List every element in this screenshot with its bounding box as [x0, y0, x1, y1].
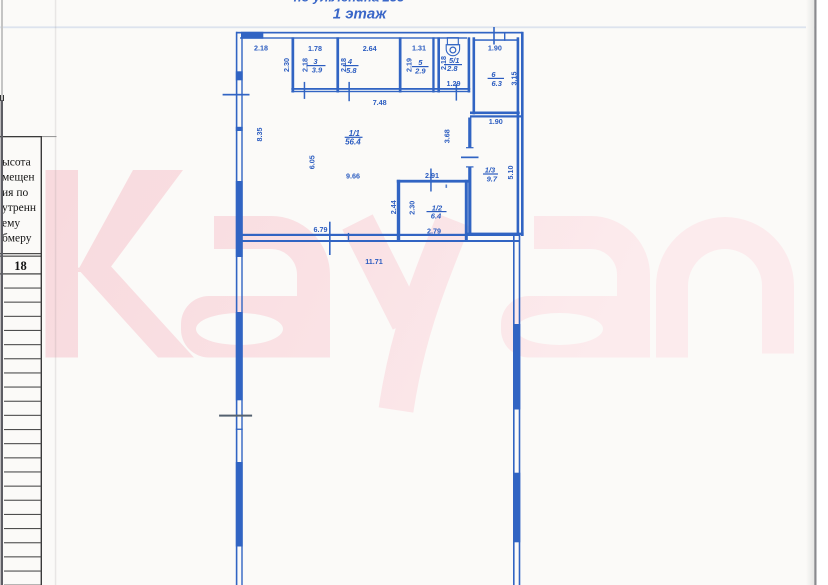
svg-text:5.10: 5.10: [506, 166, 515, 180]
svg-text:6.4: 6.4: [431, 211, 442, 220]
svg-text:5.8: 5.8: [346, 66, 357, 75]
svg-text:2.19: 2.19: [405, 58, 414, 72]
svg-text:1.90: 1.90: [489, 117, 503, 126]
svg-text:утренн: утренн: [2, 202, 36, 214]
svg-text:1.29: 1.29: [447, 79, 461, 88]
svg-text:ия по: ия по: [2, 187, 28, 199]
svg-text:1.31: 1.31: [412, 44, 426, 53]
svg-text:1.78: 1.78: [308, 44, 322, 53]
svg-text:1 этаж: 1 этаж: [333, 6, 387, 23]
svg-text:1.90: 1.90: [488, 44, 502, 53]
svg-text:мещен: мещен: [2, 172, 35, 184]
svg-text:ему: ему: [2, 217, 20, 229]
svg-text:6.05: 6.05: [308, 155, 317, 169]
svg-text:2.91: 2.91: [425, 171, 439, 180]
svg-text:1/3: 1/3: [485, 166, 496, 175]
svg-text:3.15: 3.15: [510, 72, 519, 86]
svg-text:3.9: 3.9: [312, 66, 323, 75]
svg-text:по ул.Ленина 255: по ул.Ленина 255: [294, 0, 406, 5]
svg-text:18: 18: [14, 259, 27, 273]
svg-text:56.4: 56.4: [345, 138, 361, 147]
svg-text:9.7: 9.7: [487, 174, 498, 183]
svg-text:2.79: 2.79: [427, 226, 441, 235]
svg-text:2.44: 2.44: [389, 200, 398, 214]
svg-text:ысота: ысота: [2, 157, 31, 169]
svg-text:6.3: 6.3: [491, 79, 502, 88]
svg-text:6.79: 6.79: [314, 225, 328, 234]
svg-text:7.48: 7.48: [373, 98, 387, 107]
svg-text:2.30: 2.30: [408, 201, 417, 215]
svg-text:6: 6: [491, 70, 496, 79]
svg-text:1/1: 1/1: [349, 129, 361, 138]
svg-text:2.18: 2.18: [254, 44, 268, 53]
svg-text:11.71: 11.71: [365, 257, 383, 266]
svg-text:2.9: 2.9: [414, 66, 426, 75]
svg-text:9.66: 9.66: [346, 172, 360, 181]
svg-text:2.64: 2.64: [363, 44, 377, 53]
svg-text:3.68: 3.68: [443, 129, 452, 143]
svg-text:бмеру: бмеру: [2, 233, 32, 245]
svg-text:2.30: 2.30: [282, 58, 291, 72]
svg-text:2.8: 2.8: [446, 64, 458, 73]
svg-text:8.35: 8.35: [255, 128, 264, 142]
